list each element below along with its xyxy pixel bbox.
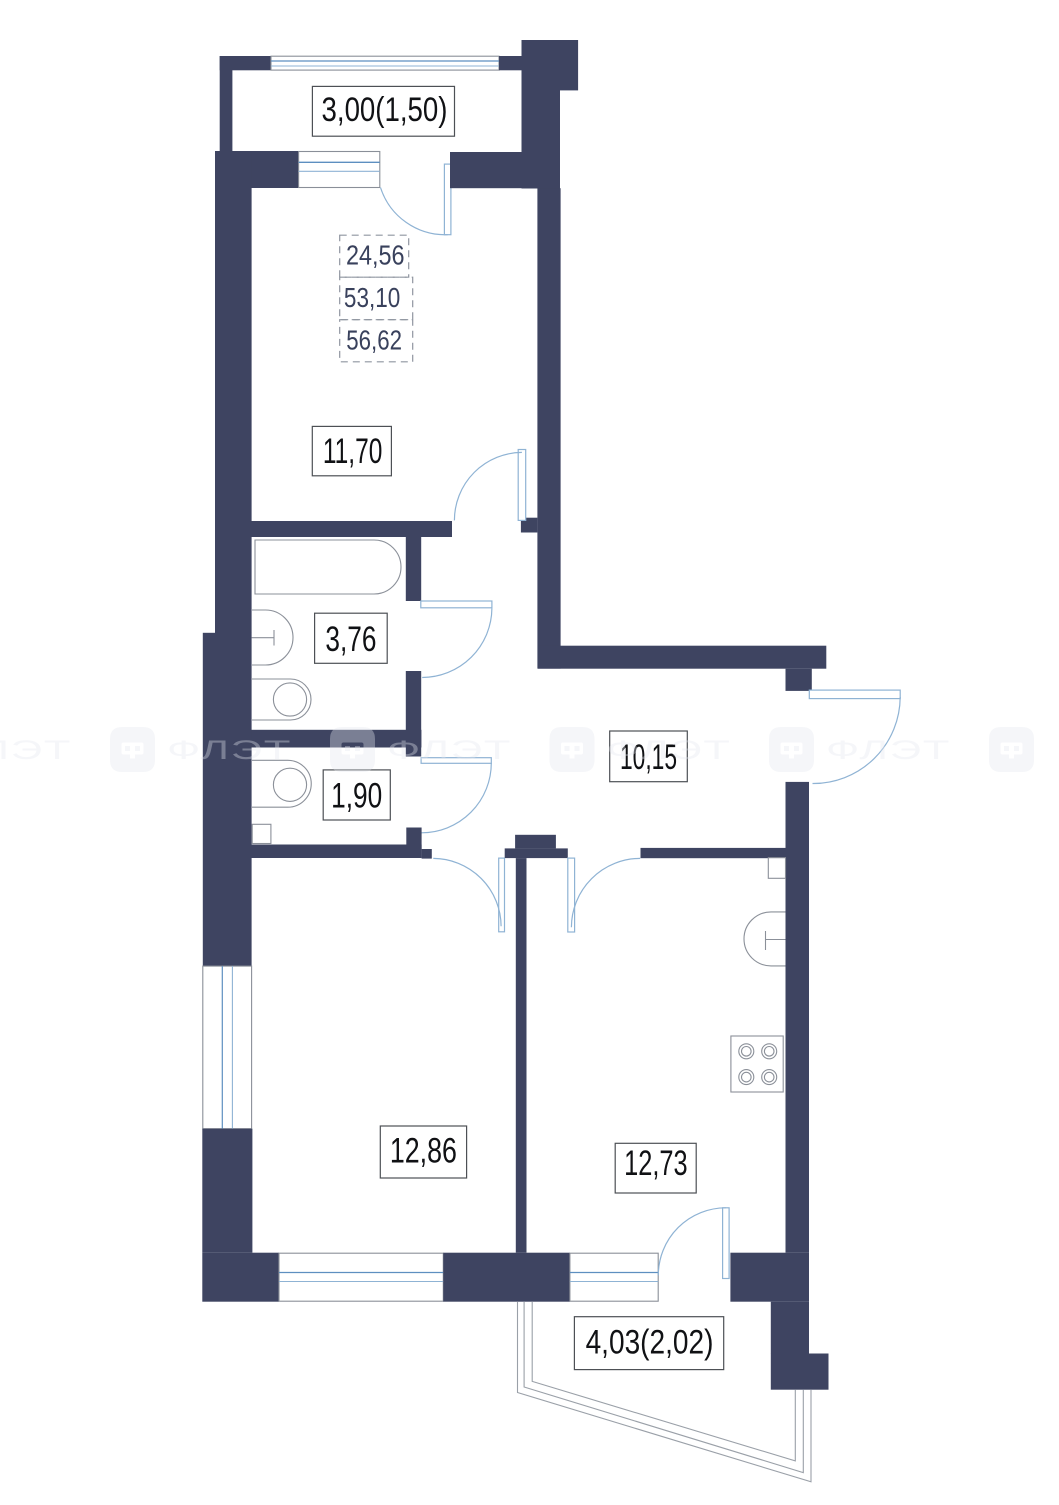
- svg-text:56,62: 56,62: [346, 325, 402, 356]
- svg-text:12,73: 12,73: [624, 1144, 687, 1183]
- svg-text:3,76: 3,76: [325, 619, 376, 659]
- svg-text:1,90: 1,90: [331, 776, 382, 816]
- svg-text:12,86: 12,86: [390, 1131, 457, 1170]
- svg-text:24,56: 24,56: [346, 241, 404, 271]
- svg-text:11,70: 11,70: [323, 433, 382, 471]
- svg-text:53,10: 53,10: [344, 283, 400, 314]
- svg-text:4,03(2,02): 4,03(2,02): [586, 1323, 714, 1361]
- svg-text:3,00(1,50): 3,00(1,50): [322, 90, 448, 128]
